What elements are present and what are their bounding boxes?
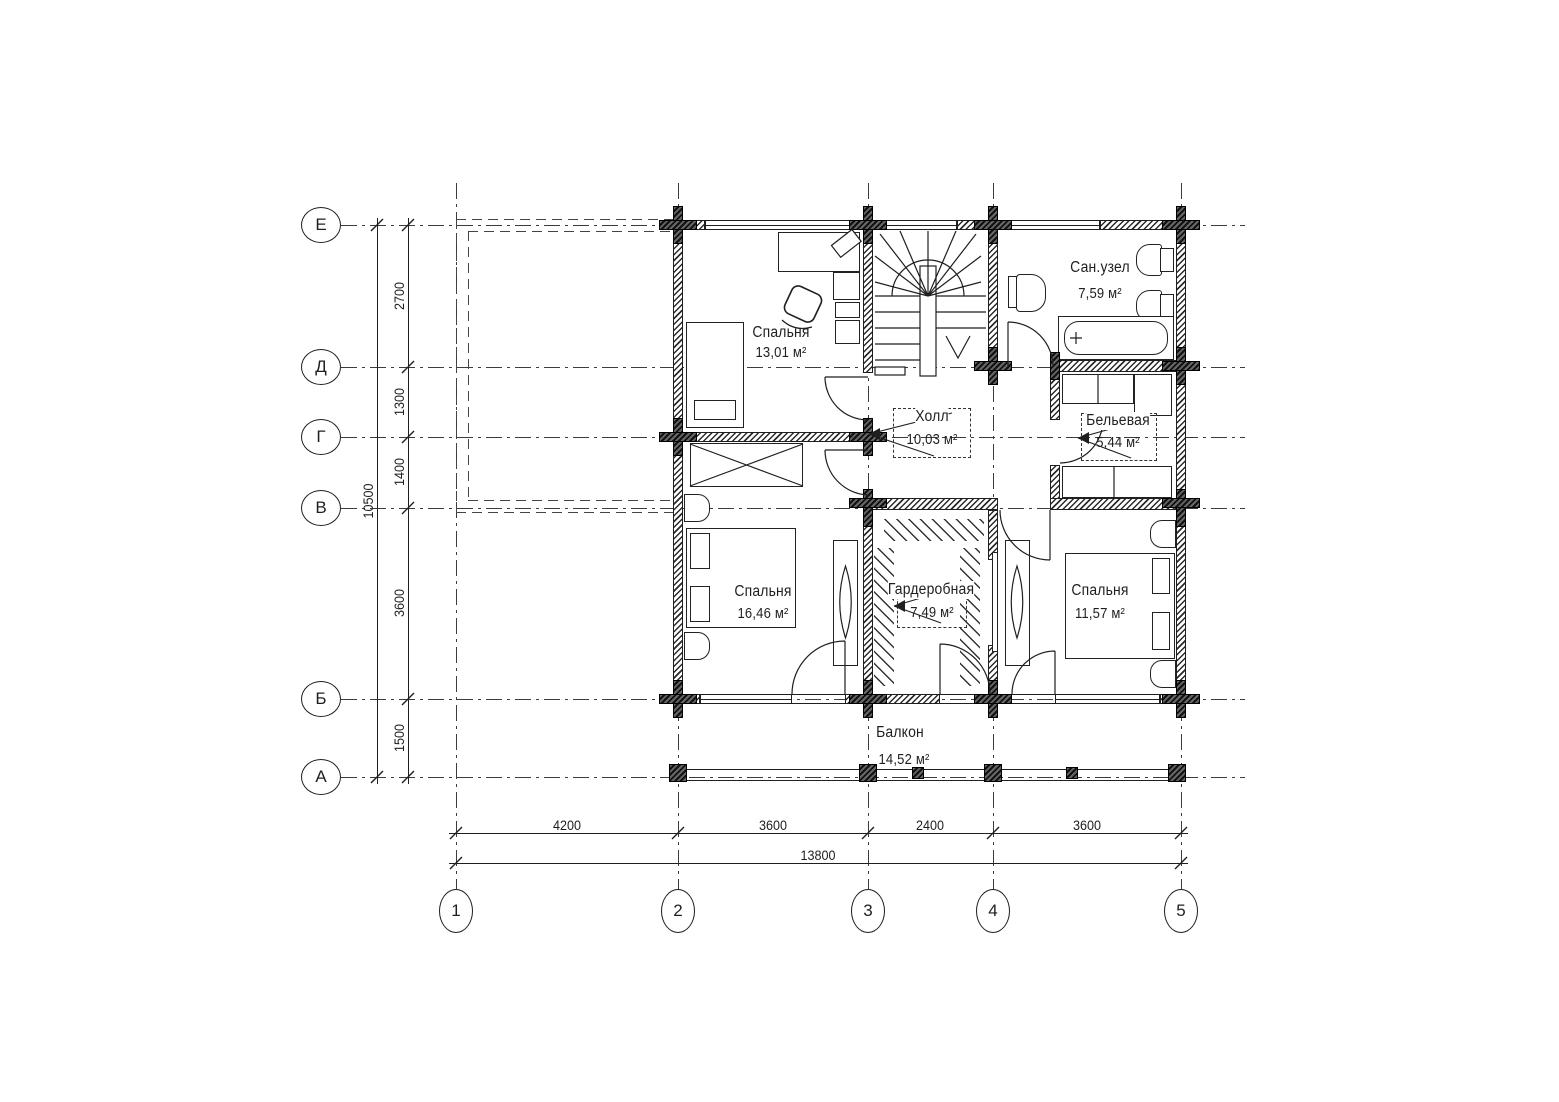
roof-outline-left-outer [456,219,457,513]
room-label-bedroom1-name: Спальня [752,324,809,342]
roof-outline-bottom-inner [468,500,674,501]
log-joint [849,432,887,442]
log-joint [659,220,697,230]
dim-bottom-1: 4200 [553,817,581,833]
clothes-rail [884,519,984,541]
axis-bubble-2: 2 [661,889,695,933]
axis-bubble-B: Б [301,681,341,717]
nightstand [684,632,710,660]
log-joint [974,220,1012,230]
log-joint [849,694,887,704]
balcony-post [984,764,1002,782]
tv-cabinet [833,540,858,666]
room-label-wardrobe-area: 7,49 м² [910,605,954,621]
dim-bottom-3: 2400 [916,817,944,833]
dim-left-5: 1500 [391,724,407,752]
desk-return [833,272,860,300]
log-joint [1162,361,1200,371]
balcony-post [1168,764,1186,782]
balcony-post [859,764,877,782]
room-label-balcony-area: 14,52 м² [878,752,929,768]
dim-bottom-4: 3600 [1073,817,1101,833]
log-joint [863,489,873,527]
room-label-bedroom3-name: Спальня [1071,582,1128,600]
shelf-unit [835,302,860,318]
room-label-bathroom-area: 7,59 м² [1078,286,1122,302]
axis-bubble-1: 1 [439,889,473,933]
window [1055,694,1160,704]
interior-wall [1055,360,1176,372]
window [1010,220,1100,230]
log-joint [659,694,697,704]
pillow [1152,612,1170,650]
window [705,220,857,230]
room-label-bathroom-name: Сан.узел [1070,259,1130,277]
room-label-linen-area: 5,44 м² [1096,435,1140,451]
log-joint [1162,694,1200,704]
wardrobe [690,443,803,487]
dim-left-3: 1400 [391,458,407,486]
nightstand [1150,520,1176,548]
axis-bubble-V: В [301,490,341,526]
balcony-post-small [912,767,924,779]
axis-bubble-3: 3 [851,889,885,933]
room-label-linen-name: Бельевая [1086,412,1150,430]
pillow [694,400,736,420]
exterior-wall [673,220,683,704]
sliding-door-panel [992,552,998,652]
sink-backsplash [1160,294,1174,318]
room-label-balcony-name: Балкон [876,724,924,742]
log-joint [849,498,887,508]
balcony-railing [673,769,1186,781]
axis-bubble-E: Е [301,207,341,243]
pillow [690,533,710,569]
door-threshold [1012,694,1055,704]
room-label-hall-name: Холл [915,408,949,426]
pillow [690,586,710,622]
sink-backsplash [1160,248,1174,272]
log-joint [1162,220,1200,230]
log-joint [849,220,887,230]
balcony-post [669,764,687,782]
linen-shelf [1062,374,1134,404]
axis-bubble-5: 5 [1164,889,1198,933]
room-label-bedroom1-area: 13,01 м² [755,345,806,361]
staircase [875,231,986,376]
door-arc [825,450,868,495]
axis-bubble-A: А [301,759,341,795]
dim-left-1: 2700 [391,282,407,310]
room-label-bedroom3-area: 11,57 м² [1075,606,1125,622]
interior-wall [683,432,863,442]
window [884,220,957,230]
dim-bottom-2: 3600 [759,817,787,833]
dimension-line-bottom-total [449,863,1188,864]
door-arc [1008,322,1053,367]
office-chair [782,284,824,325]
roof-outline-left-inner [468,231,469,501]
log-joint [974,694,1012,704]
door-threshold [792,694,845,704]
log-joint [1050,352,1060,380]
clothes-rail [874,548,894,686]
dim-bottom-total: 13800 [800,847,835,863]
roof-outline-top-inner [468,231,674,232]
room-label-bedroom2-area: 16,46 м² [737,606,788,622]
stair-direction-arrow [946,336,970,358]
axis-bubble-G: Г [301,419,341,455]
linen-shelf [1134,374,1172,416]
sink [1136,244,1162,276]
toilet-bowl [1016,274,1046,312]
dimension-line-left-segments [408,218,409,784]
log-joint [1162,498,1200,508]
exterior-wall [1176,220,1186,704]
dimension-line-bottom-segments [449,833,1188,834]
interior-wall [1050,498,1176,510]
tv-cabinet [1005,540,1030,666]
desk [778,232,860,272]
nightstand [1150,660,1176,688]
dim-left-2: 1300 [391,388,407,416]
bathtub-inner [1064,321,1168,355]
dimension-line-left-total [377,218,378,784]
roof-outline-top-outer [456,219,674,220]
interior-wall [988,230,998,362]
floor-plan-sheet: Спальня 13,01 м² Сан.узел 7,59 м² Холл 1… [0,0,1559,1102]
dim-left-total: 10500 [360,483,376,518]
room-label-wardrobe-name: Гардеробная [888,581,974,599]
dim-left-4: 3600 [391,589,407,617]
log-joint [659,432,697,442]
log-joint [1176,489,1186,527]
door-arc [825,377,868,420]
pillow [1152,558,1170,594]
linen-shelf [1062,466,1172,498]
room-label-hall-area: 10,03 м² [906,432,957,448]
interior-wall [863,230,873,373]
nightstand [684,494,710,522]
window [700,694,792,704]
room-label-bedroom2-name: Спальня [734,583,791,601]
axis-bubble-D: Д [301,349,341,385]
balcony-post-small [1066,767,1078,779]
shelf-unit [835,320,860,344]
axis-bubble-4: 4 [976,889,1010,933]
log-joint [974,361,1012,371]
roof-outline-bottom-outer [456,512,674,513]
